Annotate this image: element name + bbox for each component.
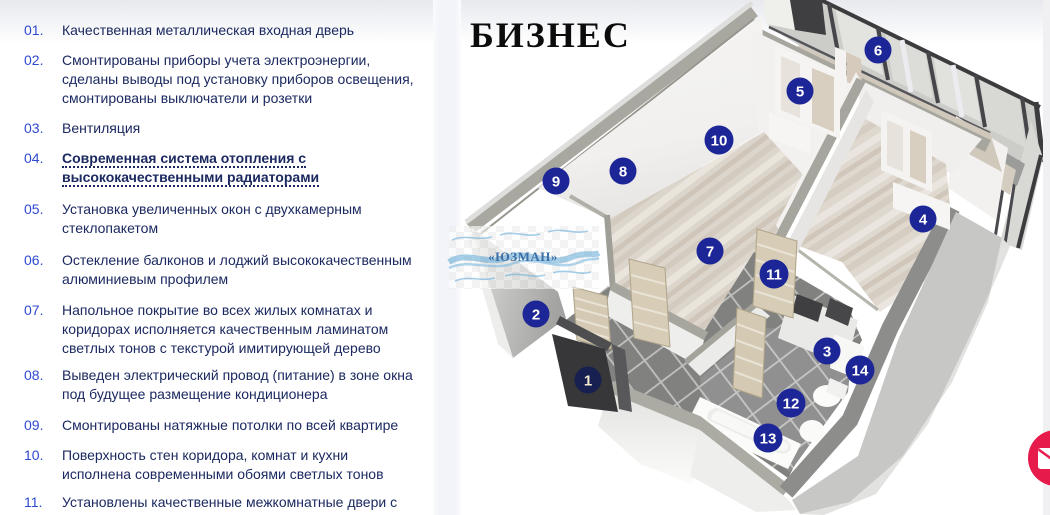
svg-text:12: 12 [783, 396, 800, 413]
svg-text:9: 9 [552, 174, 560, 191]
svg-text:8: 8 [619, 164, 627, 181]
svg-text:7: 7 [706, 244, 714, 261]
svg-text:2: 2 [532, 307, 540, 324]
svg-text:1: 1 [584, 373, 592, 390]
svg-text:11: 11 [766, 267, 782, 284]
svg-text:3: 3 [823, 344, 831, 361]
svg-text:«ЮЗМАН»: «ЮЗМАН» [488, 249, 558, 264]
svg-text:5: 5 [796, 84, 804, 101]
svg-text:14: 14 [852, 363, 869, 380]
svg-text:4: 4 [919, 212, 928, 229]
svg-text:10: 10 [711, 133, 728, 150]
svg-text:13: 13 [760, 431, 777, 448]
svg-text:6: 6 [874, 43, 882, 60]
